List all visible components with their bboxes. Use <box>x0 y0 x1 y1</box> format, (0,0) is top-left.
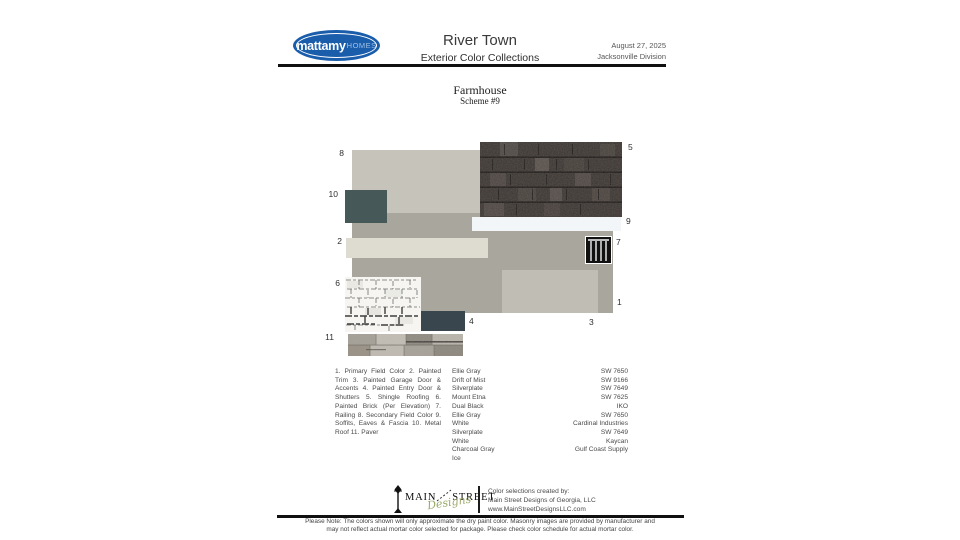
legend-row: White Kaycan <box>452 438 628 447</box>
legend-row: Ice <box>452 455 628 464</box>
note-line-1: Please Note: The colors shown will only … <box>180 518 780 526</box>
color-name: Silverplate <box>452 429 483 438</box>
header-meta: August 27, 2025 Jacksonville Division <box>597 41 666 62</box>
color-name: Ice <box>452 455 461 464</box>
legend-row: White Cardinal Industries <box>452 420 628 429</box>
color-code: SW 7649 <box>601 385 628 394</box>
color-code: Cardinal Industries <box>573 420 628 429</box>
color-code: SW 9166 <box>601 377 628 386</box>
color-name: Mount Etna <box>452 394 486 403</box>
railing-icon <box>585 236 612 264</box>
swatch-label-9: 9 <box>626 216 631 226</box>
legend-row: Dual Black IKO <box>452 403 628 412</box>
swatch-label-5: 5 <box>628 142 633 152</box>
swatch-label-7: 7 <box>616 237 621 247</box>
division-name: Jacksonville Division <box>597 52 666 63</box>
legend-row: Charcoal Gray Gulf Coast Supply <box>452 446 628 455</box>
footer-divider <box>478 486 480 513</box>
color-name: Ellie Gray <box>452 412 481 421</box>
swatch-painted-trim <box>346 238 488 258</box>
lamppost-icon <box>392 485 404 514</box>
legend-row: Ellie Gray SW 7650 <box>452 368 628 377</box>
swatch-garage-door-accents <box>502 270 598 313</box>
swatch-paver <box>348 334 463 356</box>
color-code: SW 7649 <box>601 429 628 438</box>
note-line-2: may not reflect actual mortar color sele… <box>180 526 780 534</box>
swatch-label-3: 3 <box>589 317 594 327</box>
color-name: White <box>452 438 469 447</box>
color-code: IKO <box>617 403 628 412</box>
color-code: SW 7625 <box>601 394 628 403</box>
community-title: River Town <box>0 32 960 49</box>
document-subtitle: Exterior Color Collections <box>0 52 960 64</box>
swatch-painted-brick <box>345 277 421 332</box>
swatch-entry-door-shutters <box>421 311 465 331</box>
credit-line-1: Color selections created by: <box>488 487 596 496</box>
disclaimer-note: Please Note: The colors shown will only … <box>180 518 780 534</box>
color-name: Silverplate <box>452 385 483 394</box>
color-name: Charcoal Gray <box>452 446 495 455</box>
swatch-metal-roof <box>345 190 387 223</box>
swatch-label-2: 2 <box>328 236 342 246</box>
color-code: Kaycan <box>606 438 628 447</box>
color-code: SW 7650 <box>601 368 628 377</box>
color-code: SW 7650 <box>601 412 628 421</box>
swatch-label-11: 11 <box>316 332 334 342</box>
swatch-soffits-eaves-fascia <box>472 217 621 231</box>
color-code: Gulf Coast Supply <box>575 446 628 455</box>
legend-description: 1. Primary Field Color 2. Painted Trim 3… <box>335 368 441 438</box>
paver-texture <box>348 334 463 356</box>
legend-row: Drift of Mist SW 9166 <box>452 377 628 386</box>
legend-row: Mount Etna SW 7625 <box>452 394 628 403</box>
swatch-shingle-roofing <box>480 142 622 217</box>
legend-row: Ellie Gray SW 7650 <box>452 412 628 421</box>
scheme-number: Scheme #9 <box>0 96 960 106</box>
legend-row: Silverplate SW 7649 <box>452 429 628 438</box>
shingle-texture <box>480 142 622 217</box>
legend-row: Silverplate SW 7649 <box>452 385 628 394</box>
color-scheme-sheet: mattamy HOMES River Town Exterior Color … <box>0 0 960 540</box>
color-name: Ellie Gray <box>452 368 481 377</box>
brick-texture <box>345 277 421 332</box>
designer-credit: Color selections created by: Main Street… <box>488 487 596 514</box>
document-date: August 27, 2025 <box>597 41 666 52</box>
color-name: Drift of Mist <box>452 377 485 386</box>
legend-table: Ellie Gray SW 7650 Drift of Mist SW 9166… <box>452 368 628 464</box>
credit-website: www.MainStreetDesignsLLC.com <box>488 505 596 514</box>
credit-line-2: Main Street Designs of Georgia, LLC <box>488 496 596 505</box>
swatch-label-4: 4 <box>469 316 474 326</box>
swatch-label-10: 10 <box>320 189 338 199</box>
header-rule <box>278 64 666 67</box>
swatch-label-1: 1 <box>617 297 622 307</box>
color-name: Dual Black <box>452 403 484 412</box>
swatch-label-6: 6 <box>326 278 340 288</box>
color-name: White <box>452 420 469 429</box>
swatch-railing-shutter <box>585 236 612 264</box>
swatch-label-8: 8 <box>330 148 344 158</box>
